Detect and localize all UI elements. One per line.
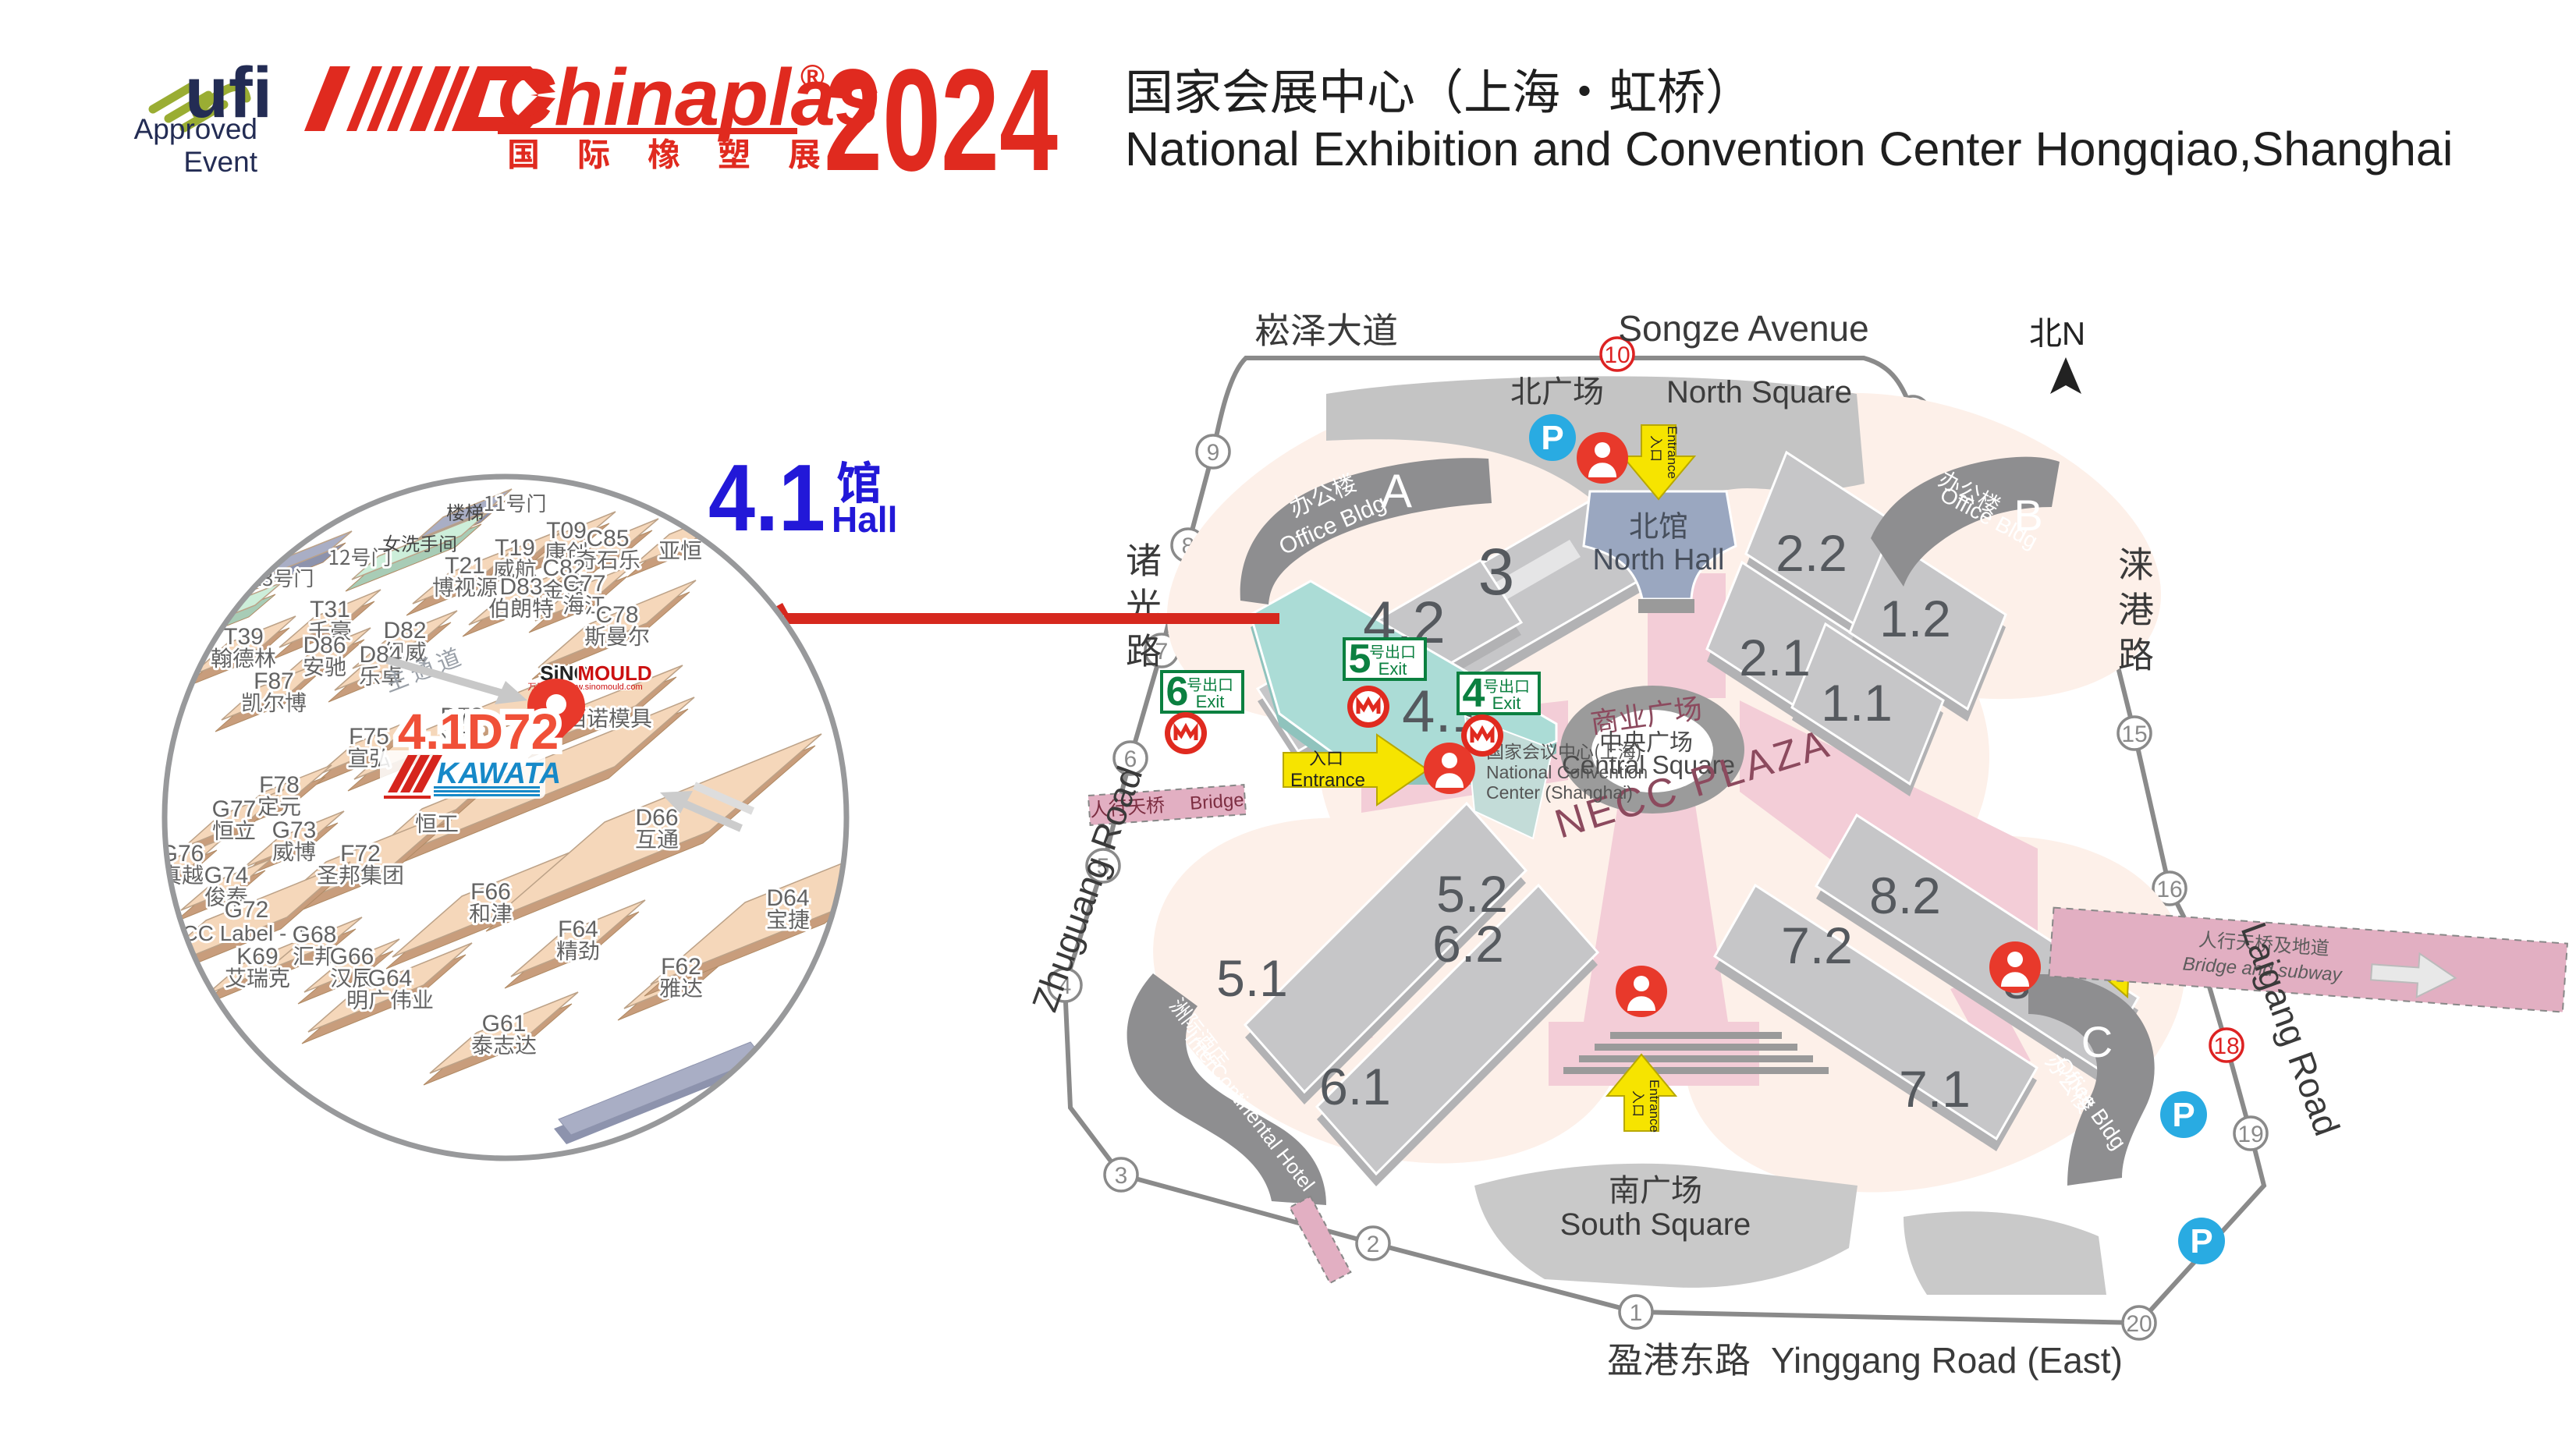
svg-text:Exit: Exit	[1492, 693, 1521, 713]
svg-text:6.2: 6.2	[1432, 915, 1504, 973]
svg-text:D66: D66	[635, 805, 678, 831]
svg-text:4: 4	[1463, 671, 1485, 716]
svg-text:North Square: North Square	[1666, 375, 1852, 409]
svg-text:1: 1	[1630, 1300, 1643, 1326]
svg-text:6: 6	[1166, 669, 1189, 714]
svg-text:2: 2	[1367, 1232, 1380, 1257]
svg-text:C77: C77	[562, 571, 605, 597]
svg-text:®: ®	[800, 58, 825, 94]
svg-text:18: 18	[2213, 1033, 2239, 1059]
svg-text:7.2: 7.2	[1781, 916, 1853, 974]
svg-text:2024: 2024	[824, 40, 1058, 201]
svg-text:K69: K69	[236, 944, 278, 970]
svg-text:9: 9	[1207, 440, 1220, 466]
svg-text:C: C	[2081, 1017, 2113, 1066]
svg-text:3: 3	[1115, 1163, 1128, 1189]
svg-text:5: 5	[1349, 636, 1371, 682]
svg-text:N: N	[2062, 315, 2085, 352]
svg-text:F75: F75	[349, 724, 389, 750]
svg-text:1.1: 1.1	[1821, 674, 1893, 732]
svg-text:A: A	[1381, 465, 1412, 517]
svg-text:2.2: 2.2	[1776, 524, 1847, 582]
svg-text:T39: T39	[223, 624, 264, 650]
svg-text:P: P	[2172, 1096, 2195, 1134]
svg-text:8.2: 8.2	[1869, 867, 1941, 924]
svg-text:T09: T09	[546, 518, 587, 544]
svg-text:Entrance: Entrance	[1647, 1080, 1662, 1133]
svg-text:C85: C85	[586, 526, 629, 551]
svg-text:Entrance: Entrance	[1290, 770, 1365, 791]
svg-text:4.1: 4.1	[708, 445, 825, 551]
svg-text:7.1: 7.1	[1899, 1060, 1971, 1118]
svg-text:Center (Shanghai): Center (Shanghai)	[1486, 782, 1633, 803]
svg-text:2.1: 2.1	[1739, 629, 1811, 686]
svg-text:1.2: 1.2	[1879, 590, 1951, 647]
svg-text:16: 16	[2156, 877, 2182, 902]
svg-text:Exit: Exit	[1196, 692, 1225, 711]
svg-text:Entrance: Entrance	[1665, 426, 1680, 479]
svg-text:Hall: Hall	[832, 499, 897, 540]
svg-text:Approved: Approved	[134, 113, 257, 145]
svg-text:20: 20	[2126, 1311, 2152, 1337]
svg-text:South Square: South Square	[1560, 1207, 1751, 1242]
svg-text:P: P	[1541, 419, 1563, 457]
svg-text:F78: F78	[259, 772, 300, 798]
svg-text:P: P	[2190, 1222, 2212, 1260]
svg-text:5.1: 5.1	[1216, 949, 1288, 1007]
svg-text:C78: C78	[595, 602, 638, 628]
svg-text:Event: Event	[183, 146, 257, 178]
svg-text:T31: T31	[310, 597, 350, 622]
svg-text:5.2: 5.2	[1436, 865, 1508, 923]
svg-text:15: 15	[2121, 721, 2147, 747]
svg-text:3: 3	[1478, 535, 1515, 608]
svg-text:B: B	[2014, 491, 2042, 540]
svg-text:19: 19	[2237, 1122, 2263, 1147]
svg-text:Bridge: Bridge	[1189, 789, 1244, 814]
svg-text:MOULD: MOULD	[577, 661, 651, 685]
svg-text:Exit: Exit	[1378, 659, 1407, 679]
svg-text:KAWATA: KAWATA	[437, 757, 561, 790]
svg-text:6.1: 6.1	[1319, 1058, 1391, 1115]
svg-text:National Exhibition and Conven: National Exhibition and Convention Cente…	[1125, 122, 2453, 175]
svg-text:National Convention: National Convention	[1486, 762, 1648, 782]
svg-text:Yinggang Road (East): Yinggang Road (East)	[1771, 1340, 2123, 1381]
svg-text:Songze Avenue: Songze Avenue	[1618, 308, 1868, 349]
svg-text:North Hall: North Hall	[1593, 544, 1725, 576]
svg-text:G72: G72	[225, 897, 269, 923]
